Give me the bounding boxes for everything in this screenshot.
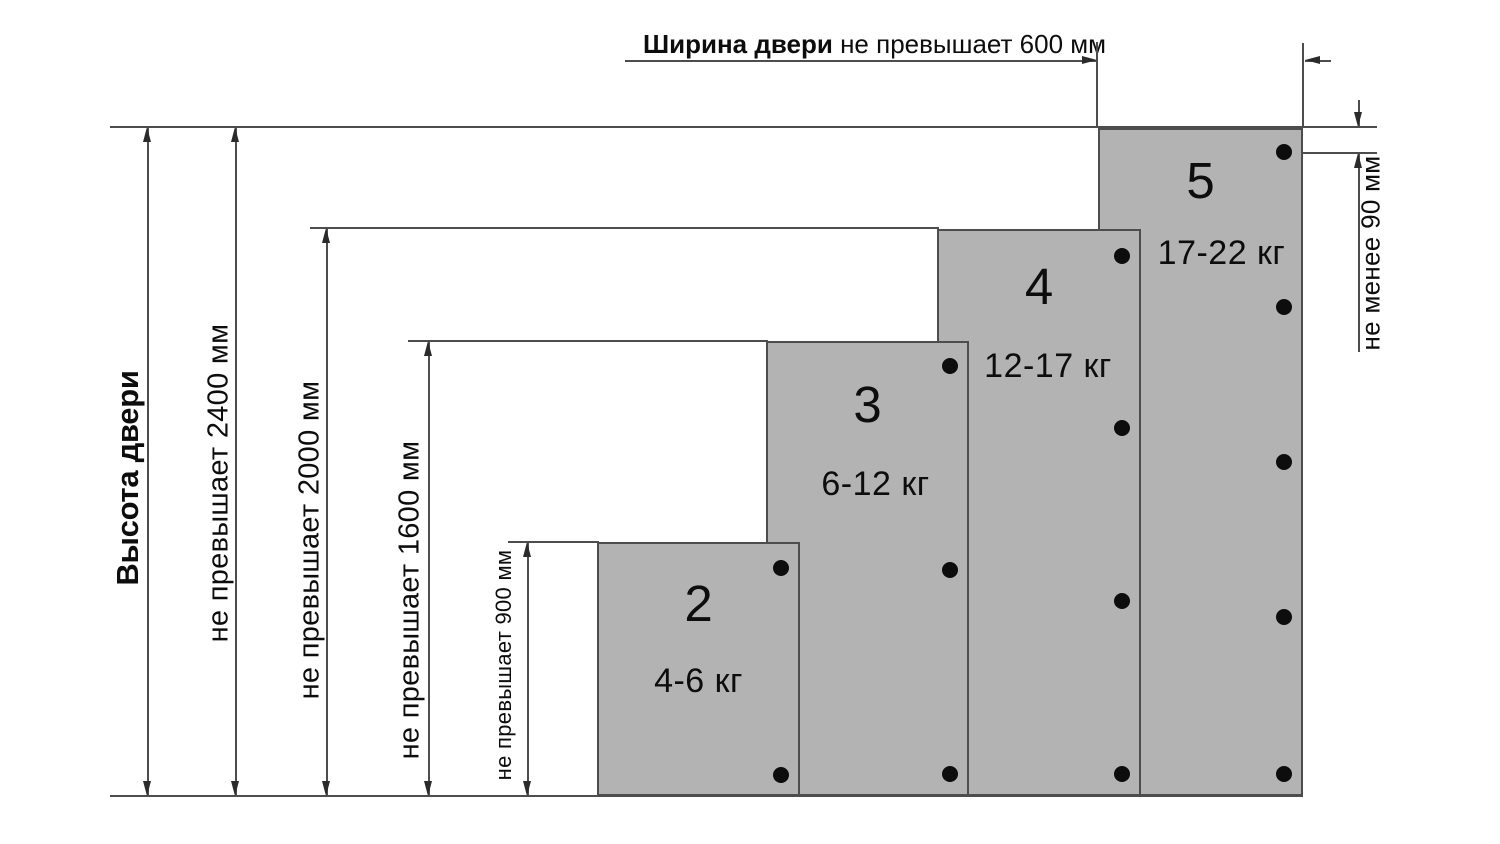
arrowhead-up-icon	[143, 127, 151, 142]
door-hinge-count: 5	[1100, 155, 1301, 206]
hinge-dot	[942, 766, 958, 782]
arrowhead-down-icon	[1354, 112, 1362, 127]
height-limit-2000-label: не превышает 2000 мм	[294, 381, 327, 700]
arrowhead-down-icon	[231, 781, 239, 796]
door-width-label-rest: не превышает 600 мм	[833, 29, 1106, 59]
hinge-dot	[1276, 454, 1292, 470]
width-extension-tick-left	[1096, 42, 1098, 128]
door-weight-range: 17-22 кг	[1121, 236, 1322, 270]
arrowhead-down-icon	[322, 781, 330, 796]
arrowhead-down-icon	[523, 781, 531, 796]
hinge-dot	[1276, 609, 1292, 625]
door-width-label: Ширина двери не превышает 600 мм	[643, 29, 1106, 60]
reference-line-900	[508, 541, 599, 543]
hinge-gap-label: не менее 90 мм	[1356, 156, 1387, 351]
height-dimension-line-1600	[428, 341, 430, 796]
arrowhead-left-icon	[1305, 56, 1320, 64]
arrowhead-up-icon	[424, 341, 432, 356]
width-extension-tick-right	[1302, 43, 1304, 128]
reference-line-2000	[310, 227, 939, 229]
hinge-dot	[1276, 144, 1292, 160]
reference-line-1600	[408, 340, 768, 342]
height-dimension-line-total	[147, 127, 149, 796]
door-hinge-count: 4	[939, 261, 1139, 312]
door-hinge-count: 2	[599, 578, 798, 629]
arrowhead-right-icon	[1082, 56, 1097, 64]
height-limit-1600-label: не превышает 1600 мм	[394, 441, 427, 760]
door-width-label-bold: Ширина двери	[643, 29, 833, 59]
door-hinge-count: 3	[768, 379, 967, 430]
door-weight-range: 4-6 кг	[599, 664, 798, 698]
door-hinge-count-diagram: Ширина двери не превышает 600 мм Высота …	[0, 0, 1500, 844]
hinge-extension-line	[1292, 152, 1377, 154]
hinge-dot	[1114, 593, 1130, 609]
hinge-dot	[1276, 299, 1292, 315]
hinge-dot	[1114, 420, 1130, 436]
arrowhead-down-icon	[424, 781, 432, 796]
width-dimension-line	[625, 60, 1097, 62]
hinge-gap-dimension-upper	[1358, 100, 1360, 127]
door-panel-2-hinges: 2 4-6 кг	[597, 542, 800, 796]
hinge-dot	[1276, 766, 1292, 782]
arrowhead-up-icon	[322, 228, 330, 243]
hinge-dot	[1114, 248, 1130, 264]
hinge-dot	[942, 562, 958, 578]
hinge-dot	[773, 560, 789, 576]
height-limit-900-label: не превышает 900 мм	[491, 550, 517, 781]
hinge-dot	[942, 358, 958, 374]
door-weight-range: 12-17 кг	[948, 349, 1148, 383]
hinge-dot	[773, 767, 789, 783]
width-dimension-line-right	[1305, 60, 1331, 62]
door-weight-range: 6-12 кг	[776, 467, 975, 501]
height-dimension-line-900	[527, 542, 529, 796]
height-axis-label: Высота двери	[110, 370, 146, 585]
arrowhead-down-icon	[143, 781, 151, 796]
arrowhead-up-icon	[231, 127, 239, 142]
hinge-dot	[1114, 766, 1130, 782]
arrowhead-up-icon	[523, 542, 531, 557]
height-limit-2400-label: не превышает 2400 мм	[203, 324, 236, 643]
